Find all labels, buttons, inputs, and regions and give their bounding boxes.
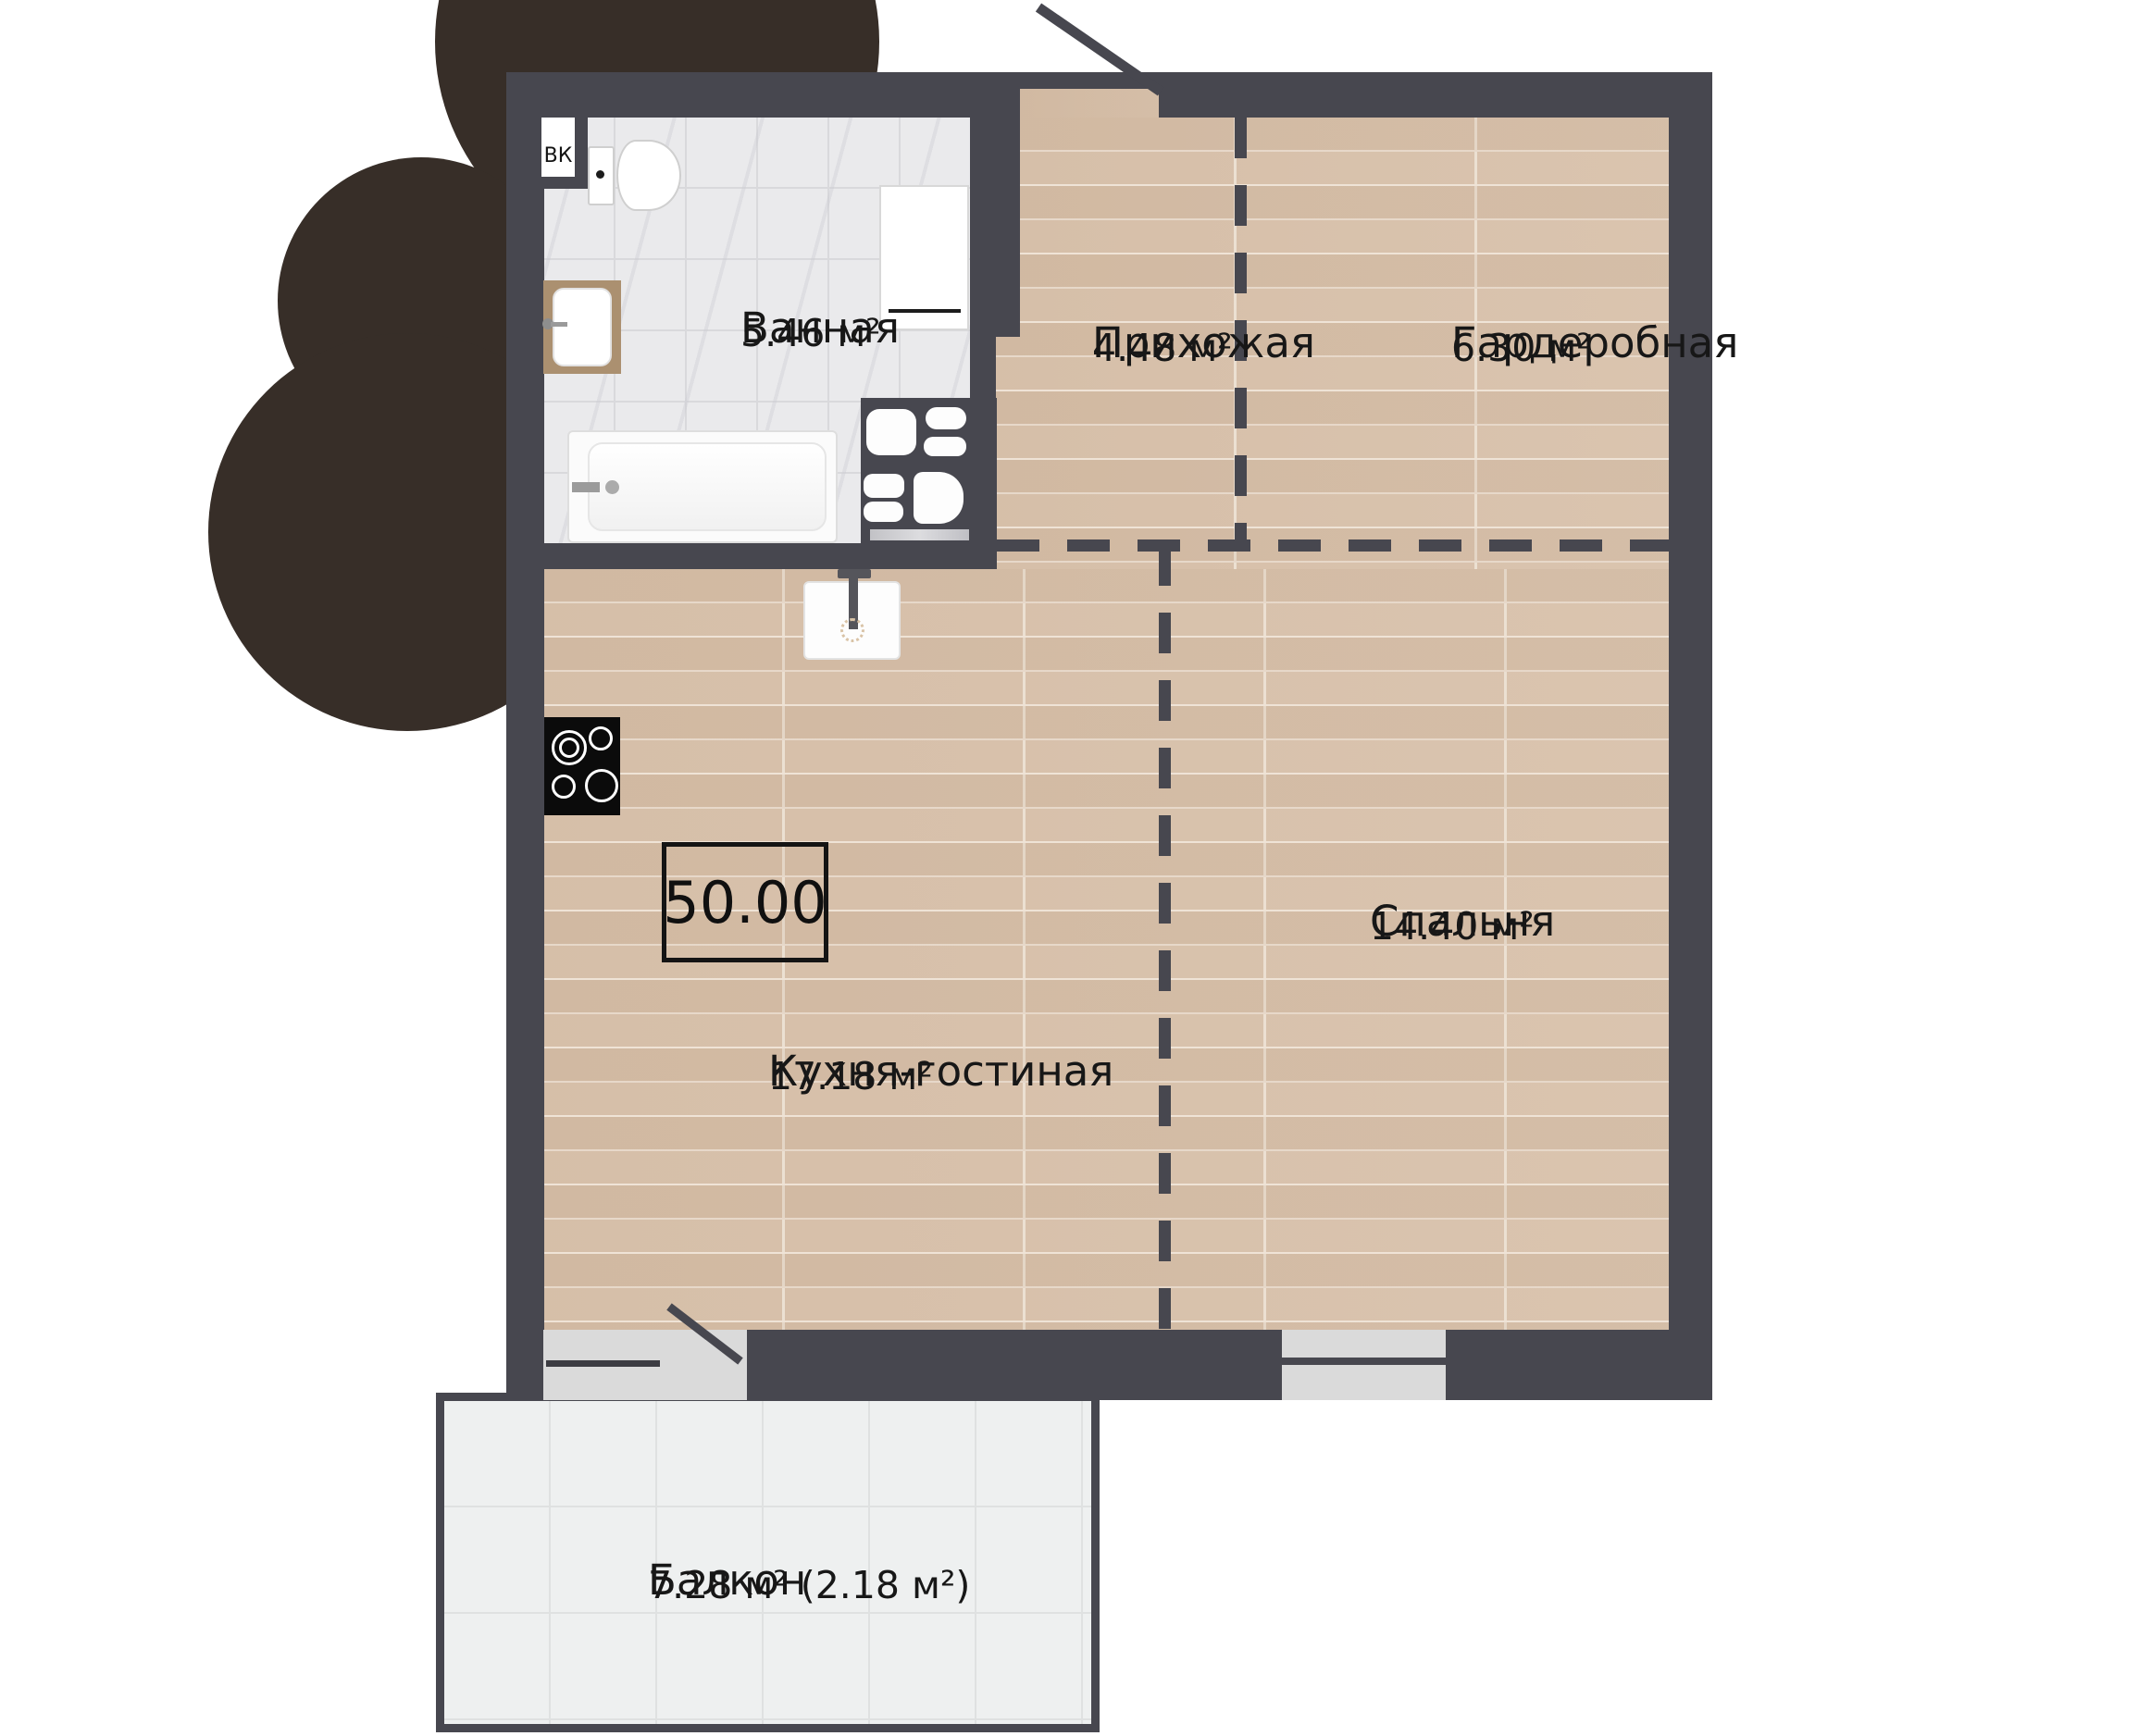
total-area-box: 50.00	[662, 842, 828, 962]
burner-icon	[585, 769, 618, 802]
cabinet-shelf	[914, 472, 964, 524]
bathtub-icon	[567, 430, 838, 543]
kitchen-living-area: 17.18 м²	[768, 1054, 933, 1098]
cabinet-shelf	[924, 437, 966, 456]
toilet-bowl-icon	[616, 140, 681, 211]
bathtub-drain-icon	[605, 480, 619, 494]
hallway-area: 4.48 м²	[1092, 326, 1233, 370]
bathroom-right-wall	[970, 72, 1020, 337]
balcony-area: 7.28 м² (2.18 м²)	[648, 1563, 970, 1607]
cabinet-base	[870, 529, 969, 540]
vanity-cabinet-icon	[543, 280, 621, 374]
bathtub-faucet-icon	[572, 482, 600, 492]
basin-spout-icon	[551, 322, 567, 327]
burner-icon	[559, 738, 579, 758]
vent-shaft-label: ВК	[518, 144, 598, 167]
kitchen-sink-drain	[840, 618, 864, 642]
cooktop-icon	[544, 717, 620, 815]
toilet-flush-icon	[596, 170, 604, 179]
bathroom-area: 5.46 м²	[740, 311, 881, 355]
washbasin-icon	[553, 288, 612, 366]
cabinet-shelf	[926, 407, 966, 429]
entry-door-opening	[1018, 89, 1159, 118]
partition-dashed-line	[997, 539, 1669, 552]
bedroom-area: 14.40 м²	[1370, 904, 1535, 949]
burner-icon	[552, 775, 576, 799]
kitchen-bedroom-divider	[1159, 545, 1171, 1330]
balcony-window-line	[546, 1360, 660, 1367]
storage-cabinet-icon	[861, 398, 997, 569]
bedroom-window-outer	[1282, 1330, 1446, 1358]
total-area-value: 50.00	[663, 869, 827, 936]
wardrobe-area: 6.30 м²	[1451, 326, 1592, 370]
cabinet-shelf	[864, 502, 903, 522]
floor-plan: ВК 50.00	[0, 0, 2151, 1736]
burner-icon	[589, 726, 613, 750]
cabinet-shelf	[866, 409, 916, 455]
cabinet-shelf	[864, 474, 904, 498]
bathtub-basin	[588, 442, 827, 531]
bedroom-window-inner	[1282, 1365, 1446, 1400]
